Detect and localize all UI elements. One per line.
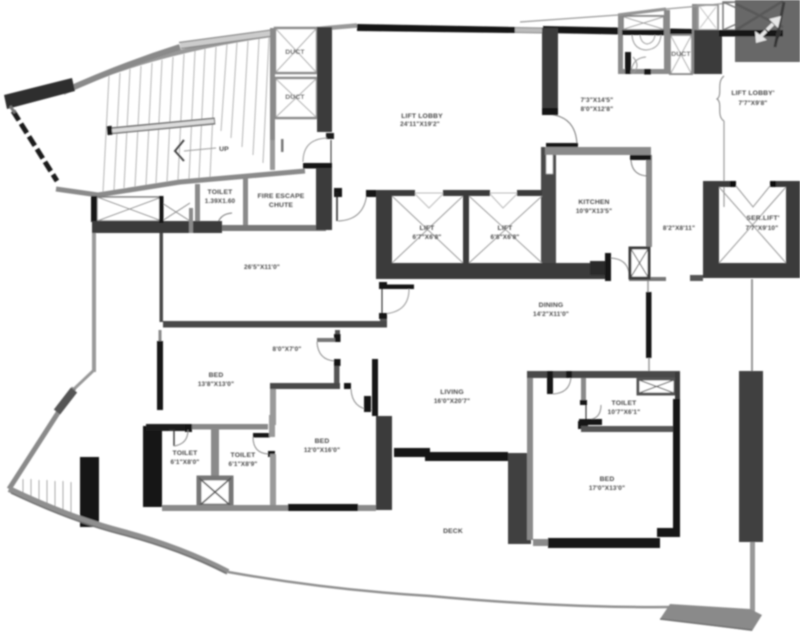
svg-text:16'0"X20'7": 16'0"X20'7" <box>434 398 470 405</box>
svg-text:LIFT LOBBY: LIFT LOBBY <box>401 113 443 120</box>
svg-text:KITCHEN: KITCHEN <box>578 199 609 206</box>
svg-text:DUCT: DUCT <box>285 94 305 101</box>
svg-text:7'7"X9'8": 7'7"X9'8" <box>739 100 768 107</box>
svg-text:13'8"X13'0": 13'8"X13'0" <box>198 381 234 388</box>
svg-text:6'7"X6'8": 6'7"X6'8" <box>413 234 442 241</box>
svg-text:TOILET: TOILET <box>208 189 234 196</box>
svg-text:7'3"X14'5": 7'3"X14'5" <box>581 97 614 104</box>
svg-text:BED: BED <box>209 372 224 379</box>
svg-text:10'9"X13'5": 10'9"X13'5" <box>576 208 612 215</box>
svg-text:LIFT: LIFT <box>420 225 436 232</box>
svg-text:BED: BED <box>600 476 615 483</box>
svg-text:FIRE ESCAPE: FIRE ESCAPE <box>258 193 305 200</box>
svg-text:6'1"X8'9": 6'1"X8'9" <box>229 461 258 468</box>
svg-text:TOILET: TOILET <box>612 400 638 407</box>
svg-text:7'7"X9'10": 7'7"X9'10" <box>746 225 779 232</box>
svg-text:SER.LIFT': SER.LIFT' <box>746 215 779 222</box>
svg-text:DUCT: DUCT <box>285 49 305 56</box>
svg-text:CHUTE: CHUTE <box>269 202 293 209</box>
svg-text:12'0"X16'0": 12'0"X16'0" <box>304 447 340 454</box>
svg-text:1.39X1.60: 1.39X1.60 <box>205 198 236 205</box>
svg-text:8'0"X7'0": 8'0"X7'0" <box>273 346 302 353</box>
svg-text:6'8"X6'8": 6'8"X6'8" <box>491 234 520 241</box>
svg-text:26'5"X11'0": 26'5"X11'0" <box>244 264 280 271</box>
svg-text:14'2"X11'0": 14'2"X11'0" <box>533 311 569 318</box>
svg-text:DINING: DINING <box>539 302 564 309</box>
svg-text:LIFT LOBBY': LIFT LOBBY' <box>731 90 775 97</box>
svg-text:UP: UP <box>219 146 229 153</box>
svg-text:DECK: DECK <box>443 528 463 535</box>
svg-text:8'0"X12'8": 8'0"X12'8" <box>581 106 614 113</box>
svg-text:LIVING: LIVING <box>440 389 464 396</box>
svg-text:BED: BED <box>315 438 330 445</box>
svg-text:6'1"X8'0": 6'1"X8'0" <box>171 459 200 466</box>
svg-text:TOILET: TOILET <box>231 452 257 459</box>
svg-text:LIFT: LIFT <box>498 225 514 232</box>
svg-text:DUCT: DUCT <box>671 51 691 58</box>
svg-text:TOILET: TOILET <box>173 450 199 457</box>
svg-text:24'11"X19'2": 24'11"X19'2" <box>400 121 440 128</box>
svg-text:17'0"X13'0": 17'0"X13'0" <box>589 485 625 492</box>
svg-text:8'2"X8'11": 8'2"X8'11" <box>663 225 695 232</box>
svg-text:10'7"X6'1": 10'7"X6'1" <box>608 409 641 416</box>
